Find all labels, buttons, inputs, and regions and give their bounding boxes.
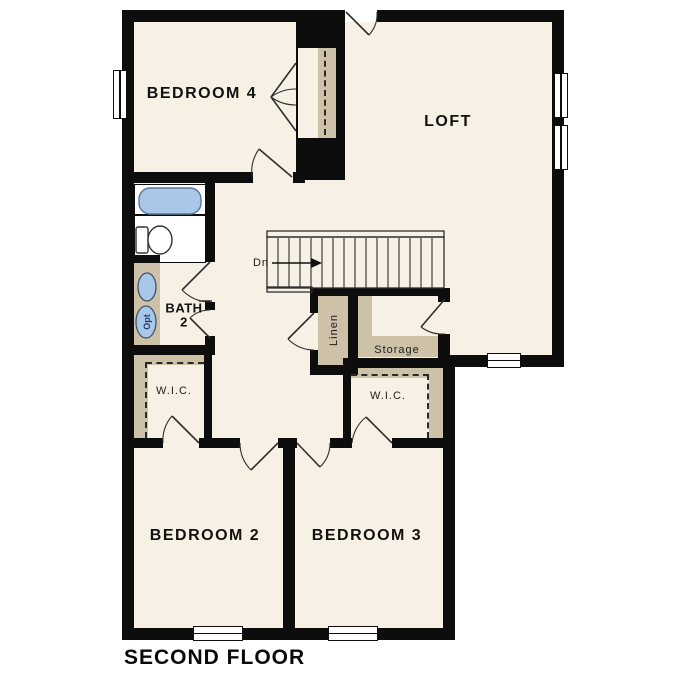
wall-wic-right-left (343, 368, 351, 448)
wall-linen-storage-divider (348, 288, 358, 375)
wall-hall-seg2 (199, 438, 240, 448)
wall-wic-right-top (343, 358, 455, 368)
wall-wic-left-top (122, 345, 204, 355)
storage-shelf-side (358, 296, 372, 336)
wall-top-right (377, 10, 564, 22)
wic-left-label: W.I.C. (156, 385, 192, 397)
wall-bedroom2-3-divider (283, 438, 295, 640)
wall-storage-right-lower (438, 334, 450, 358)
plan-title: SECOND FLOOR (124, 646, 305, 670)
wall-bedroom3-right (443, 358, 455, 640)
wic-left-rod-dash-side (145, 362, 147, 438)
wic-right-shelf-side (429, 368, 443, 440)
bedroom2-window (193, 626, 243, 641)
wic-right-rod-dash-side (427, 374, 429, 438)
tub-toilet-divider (134, 214, 206, 216)
wall-storage-right-upper (438, 288, 450, 302)
bedroom3-label: BEDROOM 3 (312, 527, 422, 545)
bedroom4-closet-recess (298, 48, 318, 138)
wic-left-rod-dash-top (146, 362, 204, 364)
bedroom4-window (113, 70, 127, 119)
linen-label: Linen (328, 314, 340, 346)
wall-top-left (122, 10, 345, 22)
bedroom3-window (328, 626, 378, 641)
optional-sink-label: Opt (142, 314, 152, 330)
wall-bedroom4-bottom (122, 172, 253, 183)
wic-right-rod-dash-top (351, 374, 429, 376)
wall-bath-stub1 (205, 302, 215, 310)
bedroom2-label: BEDROOM 2 (150, 527, 260, 545)
loft-label: LOFT (424, 113, 472, 131)
loft-window-1 (554, 73, 568, 118)
floor-plan: BEDROOM 4 LOFT BEDROOM 2 BEDROOM 3 BATH … (0, 0, 687, 687)
storage-label: Storage (374, 344, 420, 356)
stairs-dn-label: Dn (253, 257, 269, 269)
bath2-label: BATH 2 (165, 302, 202, 331)
bath-fixture-niche (134, 184, 206, 263)
loft-bottom-window (487, 353, 521, 368)
bedroom4-closet-rod-dash (324, 51, 326, 135)
bedroom4-label: BEDROOM 4 (147, 85, 257, 103)
wic-right-label: W.I.C. (370, 390, 406, 402)
wall-toilet-vanity-stub (134, 255, 160, 263)
wall-hall-seg1 (122, 438, 163, 448)
wall-loft-right (552, 10, 564, 367)
wall-under-stairs (310, 288, 450, 296)
bedroom4-closet-shelf (318, 48, 336, 138)
loft-window-2 (554, 125, 568, 170)
wall-wic-left-right (204, 345, 212, 448)
bath-vanity-counter (134, 263, 160, 348)
wall-bath-right (205, 180, 215, 262)
